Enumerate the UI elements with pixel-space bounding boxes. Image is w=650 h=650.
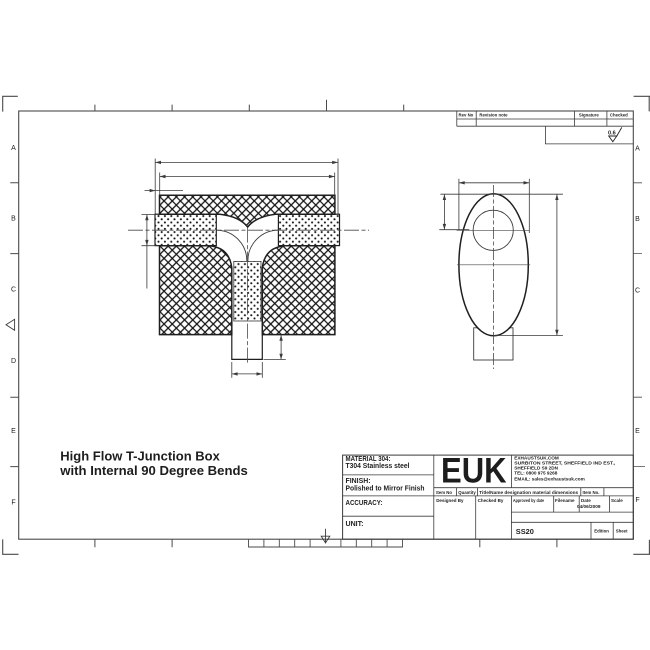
svg-text:C: C <box>11 287 16 294</box>
svg-text:A: A <box>11 145 16 152</box>
svg-text:TEL: 0800 975 9268: TEL: 0800 975 9268 <box>514 471 557 476</box>
svg-text:F: F <box>635 497 639 504</box>
svg-text:SS20: SS20 <box>516 527 534 536</box>
svg-text:ACCURACY:: ACCURACY: <box>346 500 383 507</box>
svg-text:Rev No: Rev No <box>459 112 474 117</box>
svg-text:Date: Date <box>581 498 591 503</box>
svg-text:Scale: Scale <box>611 498 623 503</box>
svg-text:EMAIL: sales@exhaustsuk.com: EMAIL: sales@exhaustsuk.com <box>514 476 584 481</box>
svg-text:Quantity: Quantity <box>458 490 476 495</box>
svg-text:04/06/2009: 04/06/2009 <box>577 504 601 509</box>
svg-text:E: E <box>11 428 16 435</box>
svg-text:Signature: Signature <box>579 112 599 117</box>
svg-text:Sheet: Sheet <box>616 529 628 534</box>
svg-text:Item No: Item No <box>436 490 452 495</box>
svg-text:F: F <box>11 499 15 506</box>
svg-text:B: B <box>635 216 640 223</box>
svg-text:UNIT:: UNIT: <box>346 521 364 528</box>
svg-text:C: C <box>635 288 640 295</box>
svg-text:Polished to Mirror Finish: Polished to Mirror Finish <box>346 485 425 492</box>
svg-text:Revision note: Revision note <box>479 112 508 117</box>
svg-text:E: E <box>635 428 640 435</box>
svg-text:A: A <box>635 146 640 153</box>
svg-text:B: B <box>11 216 16 223</box>
svg-text:Title/Name designation materia: Title/Name designation material dimensio… <box>479 490 579 495</box>
svg-text:Item No.: Item No. <box>583 490 600 495</box>
svg-text:EUK: EUK <box>441 451 507 491</box>
svg-text:Checked: Checked <box>610 112 628 117</box>
svg-text:D: D <box>11 358 16 365</box>
svg-text:Filename: Filename <box>555 498 575 503</box>
svg-text:0.6: 0.6 <box>608 131 616 137</box>
svg-text:High Flow T-Junction Box: High Flow T-Junction Box <box>60 448 220 463</box>
svg-text:Edition: Edition <box>594 529 609 534</box>
svg-text:T304 Stainless steel: T304 Stainless steel <box>346 463 410 470</box>
svg-text:Checked By: Checked By <box>478 498 504 503</box>
svg-text:Designed By: Designed By <box>436 498 464 503</box>
svg-text:FINISH:: FINISH: <box>346 478 371 485</box>
svg-text:Approved by date: Approved by date <box>513 498 544 503</box>
svg-text:with Internal 90 Degree Bends: with Internal 90 Degree Bends <box>59 463 247 478</box>
